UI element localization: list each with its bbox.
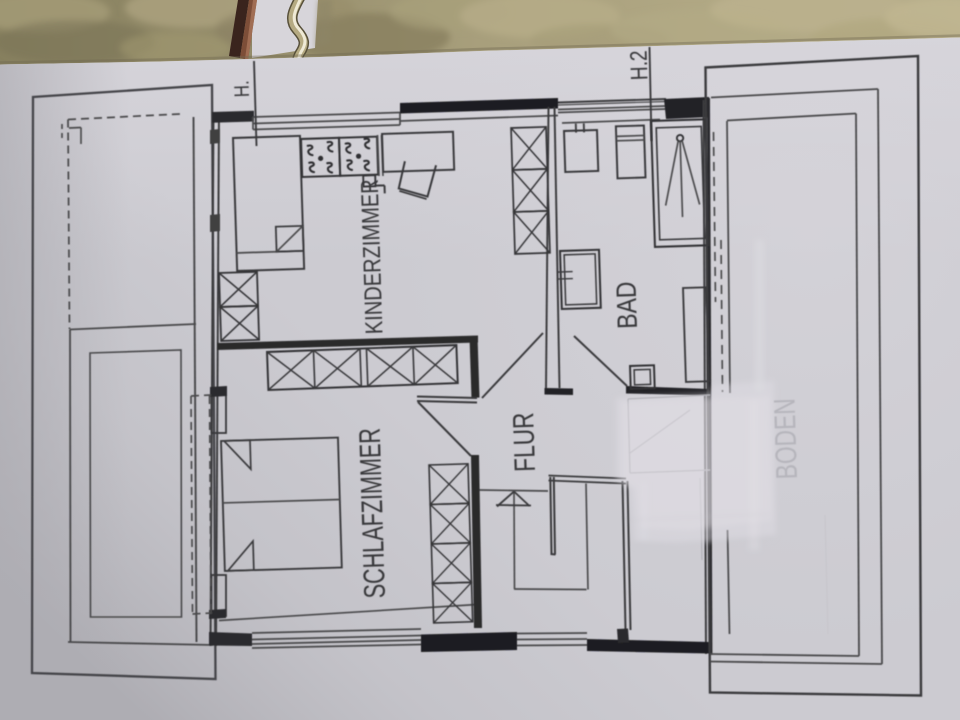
svg-text:SCHLAFZIMMER: SCHLAFZIMMER	[352, 428, 392, 599]
svg-text:BODEN: BODEN	[767, 398, 803, 480]
svg-text:H.: H.	[231, 80, 255, 98]
svg-text:BAD: BAD	[611, 281, 643, 329]
svg-text:FLUR: FLUR	[506, 412, 541, 472]
svg-text:KINDERZIMMER: KINDERZIMMER	[356, 179, 388, 335]
